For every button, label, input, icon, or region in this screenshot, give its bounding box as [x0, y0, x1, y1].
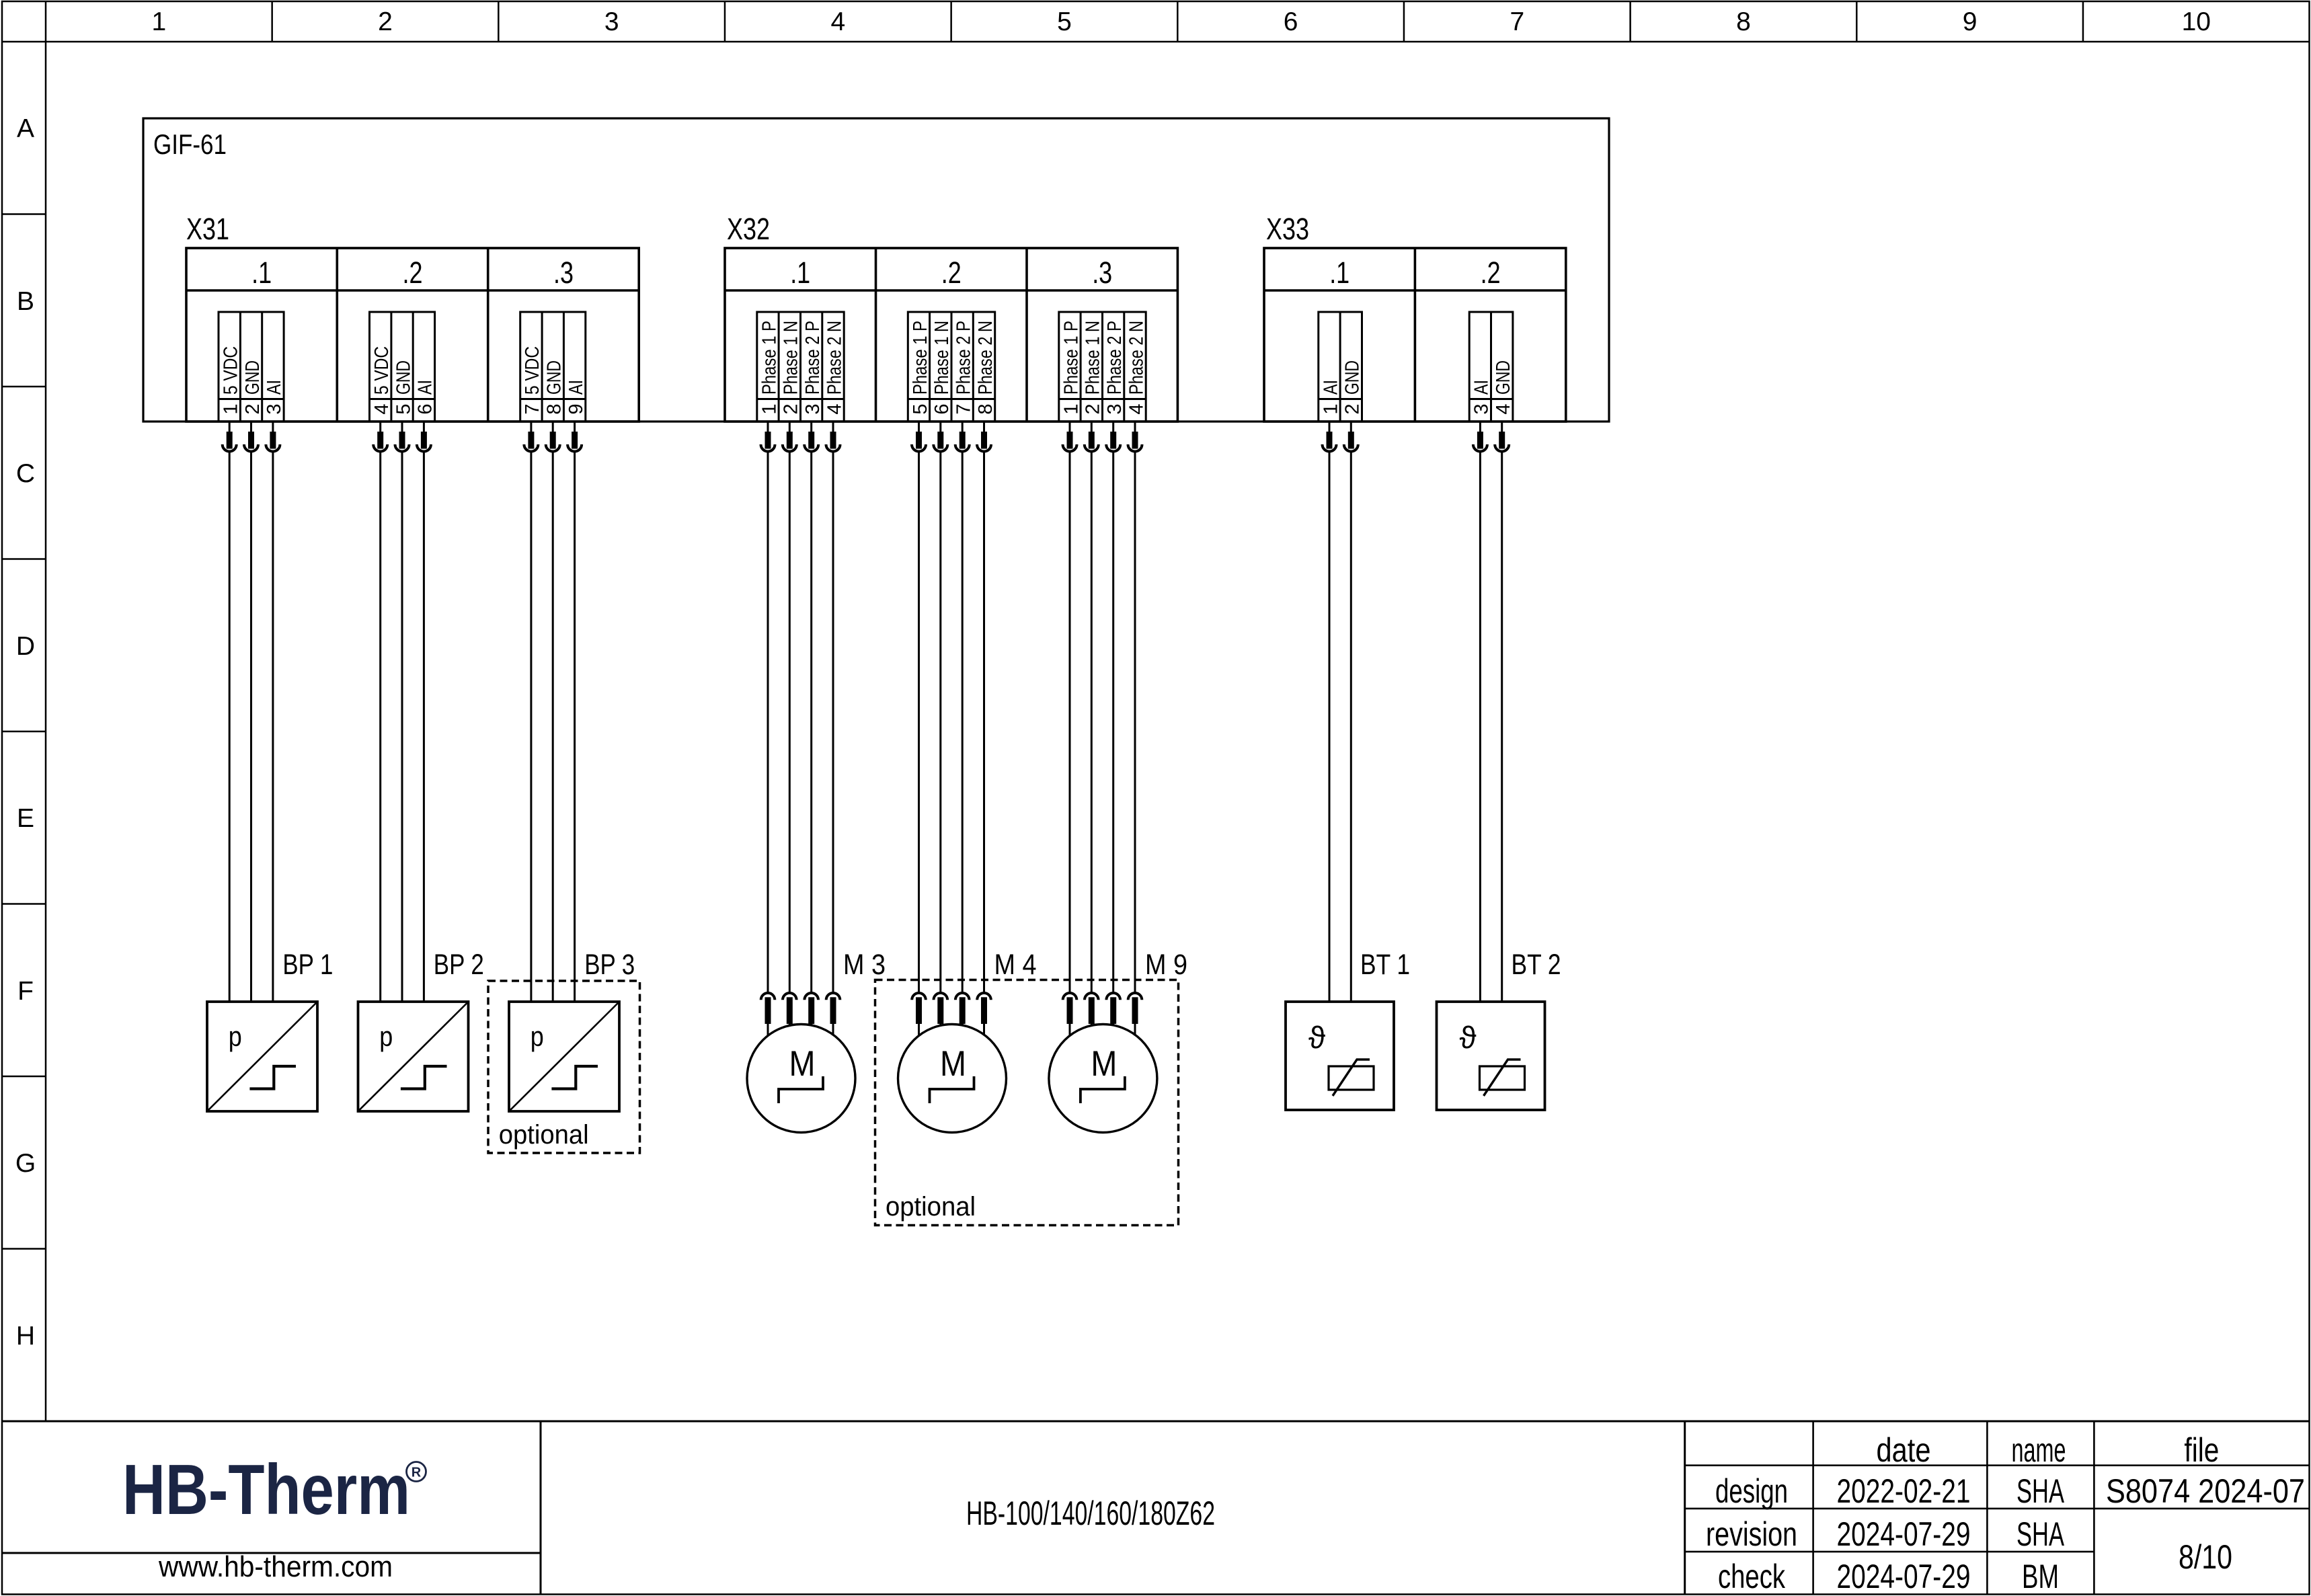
svg-text:Phase 1 N: Phase 1 N — [781, 321, 802, 395]
svg-text:.2: .2 — [1481, 255, 1501, 290]
svg-text:F: F — [17, 977, 34, 1006]
svg-text:GIF-61: GIF-61 — [153, 128, 227, 160]
svg-text:7: 7 — [522, 403, 543, 414]
svg-text:2024-07-29: 2024-07-29 — [1837, 1515, 1971, 1553]
svg-text:name: name — [2012, 1431, 2066, 1469]
svg-text:GND: GND — [544, 360, 565, 395]
svg-text:5: 5 — [393, 403, 414, 414]
svg-text:2: 2 — [781, 403, 802, 414]
svg-text:Phase 2 P: Phase 2 P — [953, 321, 975, 395]
svg-text:GND: GND — [1493, 360, 1514, 395]
svg-text:p: p — [531, 1021, 544, 1052]
svg-text:BP 3: BP 3 — [584, 949, 635, 981]
svg-text:HB-Therm: HB-Therm — [122, 1450, 410, 1529]
svg-text:.2: .2 — [403, 255, 423, 290]
svg-text:5: 5 — [910, 403, 931, 414]
svg-text:HB-100/140/160/180Z62: HB-100/140/160/180Z62 — [966, 1494, 1215, 1532]
svg-text:1: 1 — [221, 403, 242, 414]
svg-text:X31: X31 — [186, 212, 229, 246]
svg-text:2: 2 — [242, 403, 264, 414]
svg-text:Phase 2 P: Phase 2 P — [802, 321, 824, 395]
svg-text:Phase 1 P: Phase 1 P — [758, 321, 780, 395]
svg-text:BM: BM — [2022, 1558, 2059, 1595]
svg-text:M: M — [789, 1044, 816, 1084]
svg-text:X32: X32 — [727, 212, 770, 246]
svg-text:AI: AI — [415, 380, 436, 395]
svg-text:1: 1 — [1320, 403, 1341, 414]
svg-text:Phase 1 P: Phase 1 P — [1060, 321, 1082, 395]
svg-text:9: 9 — [1963, 7, 1977, 36]
svg-text:6: 6 — [1284, 7, 1298, 36]
svg-text:file: file — [2184, 1431, 2219, 1469]
svg-text:AI: AI — [1320, 380, 1341, 395]
svg-text:2024-07-29: 2024-07-29 — [1837, 1558, 1971, 1595]
svg-text:p: p — [379, 1021, 393, 1052]
svg-text:7: 7 — [1510, 7, 1524, 36]
svg-text:BP 2: BP 2 — [434, 949, 484, 981]
svg-text:G: G — [15, 1149, 36, 1178]
svg-text:8: 8 — [544, 403, 565, 414]
svg-text:X33: X33 — [1266, 212, 1309, 246]
svg-text:3: 3 — [264, 403, 285, 414]
svg-text:5 VDC: 5 VDC — [522, 346, 543, 395]
svg-text:GND: GND — [1342, 360, 1364, 395]
svg-text:C: C — [16, 459, 35, 488]
svg-text:5: 5 — [1057, 7, 1072, 36]
svg-text:2: 2 — [378, 7, 393, 36]
svg-text:M 3: M 3 — [843, 949, 886, 981]
svg-text:4: 4 — [1126, 403, 1147, 414]
svg-text:1: 1 — [758, 403, 780, 414]
svg-text:A: A — [17, 114, 34, 143]
svg-text:H: H — [16, 1322, 35, 1351]
svg-text:.1: .1 — [251, 255, 272, 290]
svg-text:8/10: 8/10 — [2179, 1538, 2232, 1576]
svg-text:1: 1 — [151, 7, 166, 36]
svg-text:M: M — [1091, 1044, 1117, 1084]
svg-text:.3: .3 — [553, 255, 574, 290]
svg-text:check: check — [1718, 1558, 1786, 1595]
svg-text:ϑ: ϑ — [1308, 1020, 1325, 1055]
svg-text:.2: .2 — [941, 255, 962, 290]
svg-text:M: M — [940, 1044, 966, 1084]
svg-text:Phase 1 N: Phase 1 N — [931, 321, 953, 395]
svg-text:3: 3 — [1471, 403, 1493, 414]
svg-text:Phase 2 P: Phase 2 P — [1104, 321, 1126, 395]
svg-text:D: D — [16, 632, 35, 661]
svg-text:B: B — [17, 287, 34, 316]
svg-text:4: 4 — [371, 403, 393, 414]
svg-text:Phase 1 N: Phase 1 N — [1083, 321, 1104, 395]
svg-text:BT 1: BT 1 — [1360, 949, 1410, 981]
svg-text:S8074 2024-07: S8074 2024-07 — [2106, 1472, 2305, 1510]
svg-text:8: 8 — [1736, 7, 1751, 36]
svg-text:SHA: SHA — [2016, 1515, 2064, 1553]
svg-text:ϑ: ϑ — [1460, 1020, 1477, 1055]
svg-text:AI: AI — [264, 380, 285, 395]
svg-text:8: 8 — [975, 403, 996, 414]
svg-text:optional: optional — [499, 1120, 589, 1150]
svg-text:6: 6 — [931, 403, 953, 414]
svg-text:revision: revision — [1706, 1515, 1797, 1553]
svg-text:SHA: SHA — [2016, 1472, 2064, 1510]
svg-text:4: 4 — [830, 7, 845, 36]
svg-text:www.hb-therm.com: www.hb-therm.com — [158, 1550, 393, 1583]
svg-text:2: 2 — [1083, 403, 1104, 414]
svg-text:BP 1: BP 1 — [282, 949, 333, 981]
svg-text:.1: .1 — [1329, 255, 1349, 290]
svg-text:R: R — [412, 1466, 422, 1480]
svg-text:2022-02-21: 2022-02-21 — [1837, 1472, 1971, 1510]
svg-text:GND: GND — [242, 360, 264, 395]
svg-text:1: 1 — [1060, 403, 1082, 414]
svg-text:p: p — [229, 1021, 242, 1052]
svg-text:AI: AI — [565, 380, 587, 395]
svg-text:GND: GND — [393, 360, 414, 395]
svg-text:M 4: M 4 — [994, 949, 1037, 981]
svg-text:Phase 2 N: Phase 2 N — [975, 321, 996, 395]
svg-text:3: 3 — [604, 7, 619, 36]
svg-text:.3: .3 — [1092, 255, 1112, 290]
svg-text:5 VDC: 5 VDC — [371, 346, 393, 395]
svg-text:2: 2 — [1342, 403, 1364, 414]
svg-text:4: 4 — [1493, 403, 1514, 414]
svg-text:design: design — [1715, 1472, 1788, 1510]
svg-text:optional: optional — [886, 1192, 976, 1222]
svg-text:E: E — [17, 804, 34, 833]
svg-text:9: 9 — [565, 403, 587, 414]
svg-text:6: 6 — [415, 403, 436, 414]
svg-text:Phase 2 N: Phase 2 N — [1126, 321, 1147, 395]
svg-text:5 VDC: 5 VDC — [221, 346, 242, 395]
svg-text:Phase 1 P: Phase 1 P — [910, 321, 931, 395]
svg-text:3: 3 — [1104, 403, 1126, 414]
svg-text:7: 7 — [953, 403, 975, 414]
svg-text:AI: AI — [1471, 380, 1493, 395]
svg-text:date: date — [1877, 1431, 1931, 1469]
svg-text:BT 2: BT 2 — [1512, 949, 1561, 981]
svg-text:3: 3 — [802, 403, 824, 414]
svg-text:Phase 2 N: Phase 2 N — [824, 321, 845, 395]
svg-text:4: 4 — [824, 403, 845, 414]
svg-text:M 9: M 9 — [1145, 949, 1187, 981]
svg-text:10: 10 — [2182, 7, 2211, 36]
svg-text:.1: .1 — [790, 255, 810, 290]
